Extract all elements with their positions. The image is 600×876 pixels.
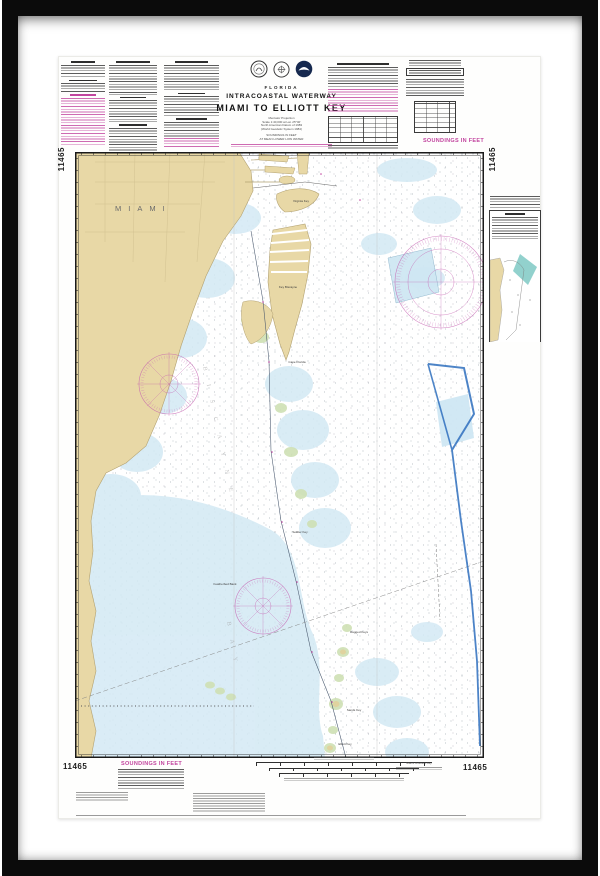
note-text-lines xyxy=(406,79,464,97)
note-heading xyxy=(69,80,98,82)
sands-key-land xyxy=(333,701,340,707)
feature-label: Sands Key xyxy=(347,708,362,712)
notes-column-4 xyxy=(328,61,398,151)
nautical-chart-map: MIAMI BISCAYNE BAY Virginia Key Key Bisc… xyxy=(75,152,484,758)
notes-table xyxy=(328,116,398,143)
chart-number-right-edge: 11465 xyxy=(488,147,497,171)
publisher-note-lines xyxy=(76,792,128,802)
boxed-note xyxy=(406,68,464,76)
inset-box xyxy=(489,210,541,342)
chart-number-left-edge: 11465 xyxy=(57,147,66,171)
chart-number-bottom-left: 11465 xyxy=(63,762,87,771)
feature-label: Cape Florida xyxy=(288,360,306,364)
chart-number-bottom-right: 11465 xyxy=(463,763,487,772)
feature-label: Featherbed Bank xyxy=(213,582,237,586)
notes-column-1 xyxy=(61,59,105,151)
note-text-lines xyxy=(61,65,105,78)
note-text-lines xyxy=(328,67,398,87)
note-heading xyxy=(178,93,206,95)
feature-label: Key Biscayne xyxy=(279,285,298,289)
note-text-lines-magenta xyxy=(61,98,105,146)
note-heading xyxy=(176,118,208,120)
caption-line: Miami to Elliott Key xyxy=(389,762,449,766)
tide-table xyxy=(414,101,456,133)
note-text-lines xyxy=(409,60,461,66)
note-heading xyxy=(116,61,150,63)
anchorage-area-south xyxy=(436,394,474,447)
purchase-note-magenta xyxy=(231,144,333,147)
note-text-lines xyxy=(61,83,105,92)
note-heading xyxy=(120,97,146,99)
noaa-emblem-icon xyxy=(295,60,313,83)
note-heading xyxy=(71,61,95,63)
top-left-notes xyxy=(61,59,221,151)
miami-city-label: MIAMI xyxy=(115,204,172,213)
note-text-lines xyxy=(109,128,157,152)
scale-tick-labels xyxy=(284,778,404,781)
note-text-lines xyxy=(109,100,157,122)
note-heading-magenta xyxy=(70,94,96,96)
inset-legend-heading xyxy=(505,213,525,215)
chart-paper: FLORIDA INTRACOASTAL WATERWAY MIAMI TO E… xyxy=(58,56,541,819)
bottom-note-paragraph xyxy=(118,769,184,790)
note-text-lines-magenta xyxy=(328,89,398,113)
soundings-in-feet-bottom: SOUNDINGS IN FEET xyxy=(121,761,182,767)
feature-label: Elliott Key xyxy=(338,742,352,746)
framed-nautical-chart-photo: FLORIDA INTRACOASTAL WATERWAY MIAMI TO E… xyxy=(0,0,600,876)
note-heading xyxy=(337,63,390,65)
inset-note-lines xyxy=(490,196,540,208)
notes-column-5 xyxy=(406,60,464,140)
soundings-in-feet-top: SOUNDINGS IN FEET xyxy=(417,138,484,144)
feature-label: Ragged Keys xyxy=(350,630,369,634)
notes-column-2 xyxy=(109,59,157,151)
bottom-rule xyxy=(76,815,466,816)
miami-beach-strip xyxy=(297,152,309,174)
caption-subline xyxy=(396,767,442,770)
bottom-right-caption: Miami to Elliott Key xyxy=(389,762,449,770)
elliott-key-land xyxy=(327,746,333,751)
fisher-island xyxy=(279,176,295,184)
note-text-lines xyxy=(409,70,461,75)
scale-bar-statute-miles xyxy=(279,773,409,777)
feature-label: Virginia Key xyxy=(293,199,309,203)
commerce-seal-icon xyxy=(250,60,268,83)
note-text-lines xyxy=(109,65,157,95)
note-heading xyxy=(175,61,208,63)
transportation-seal-icon xyxy=(273,61,290,83)
note-text-lines xyxy=(328,145,398,150)
distribution-note-lines xyxy=(193,793,265,812)
scale-caption-lines xyxy=(314,757,374,760)
right-margin-inset xyxy=(489,196,541,346)
inset-legend-lines xyxy=(492,217,538,239)
feature-label: Soldier Key xyxy=(292,530,308,534)
inset-mini-map xyxy=(490,240,540,342)
note-heading xyxy=(119,124,148,126)
